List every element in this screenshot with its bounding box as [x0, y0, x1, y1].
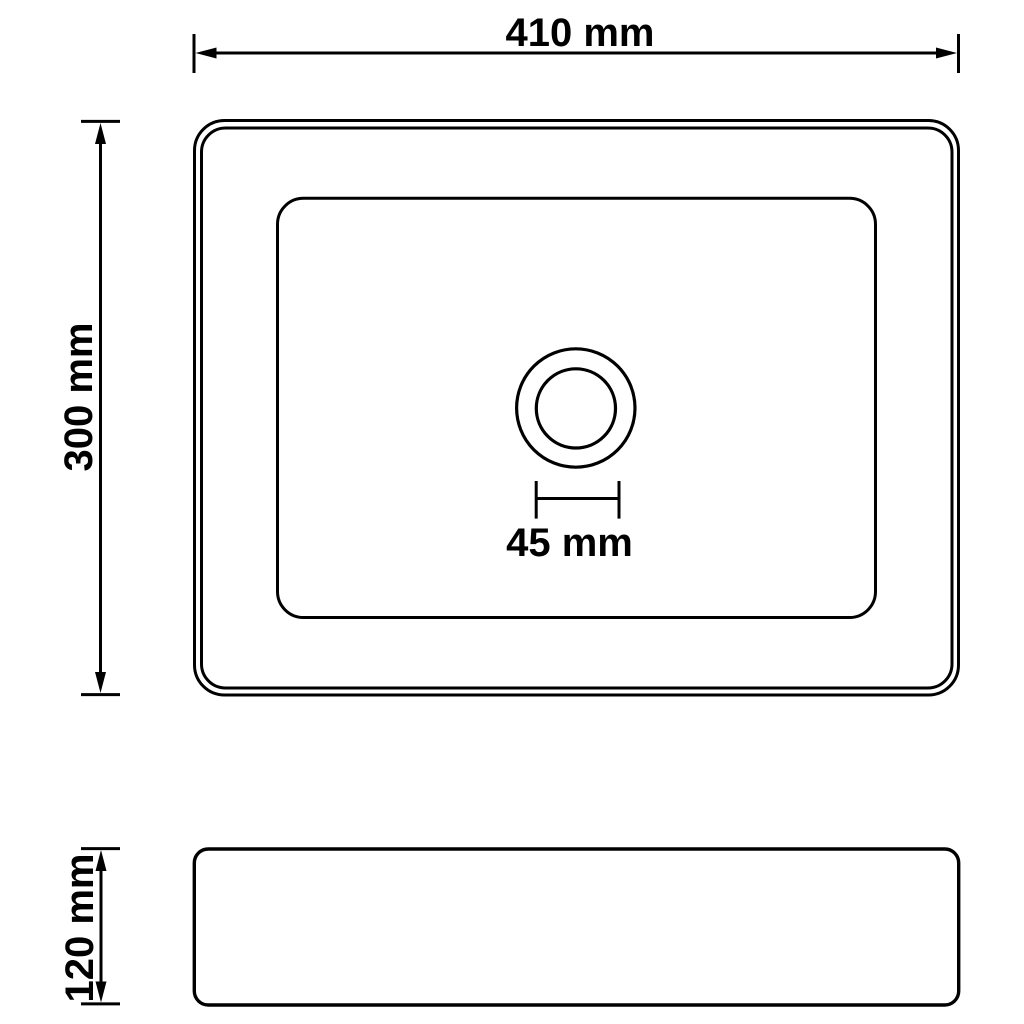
svg-text:410 mm: 410 mm: [506, 11, 655, 55]
svg-text:300 mm: 300 mm: [57, 323, 101, 472]
svg-text:45 mm: 45 mm: [506, 521, 633, 565]
svg-text:120 mm: 120 mm: [58, 854, 102, 1003]
